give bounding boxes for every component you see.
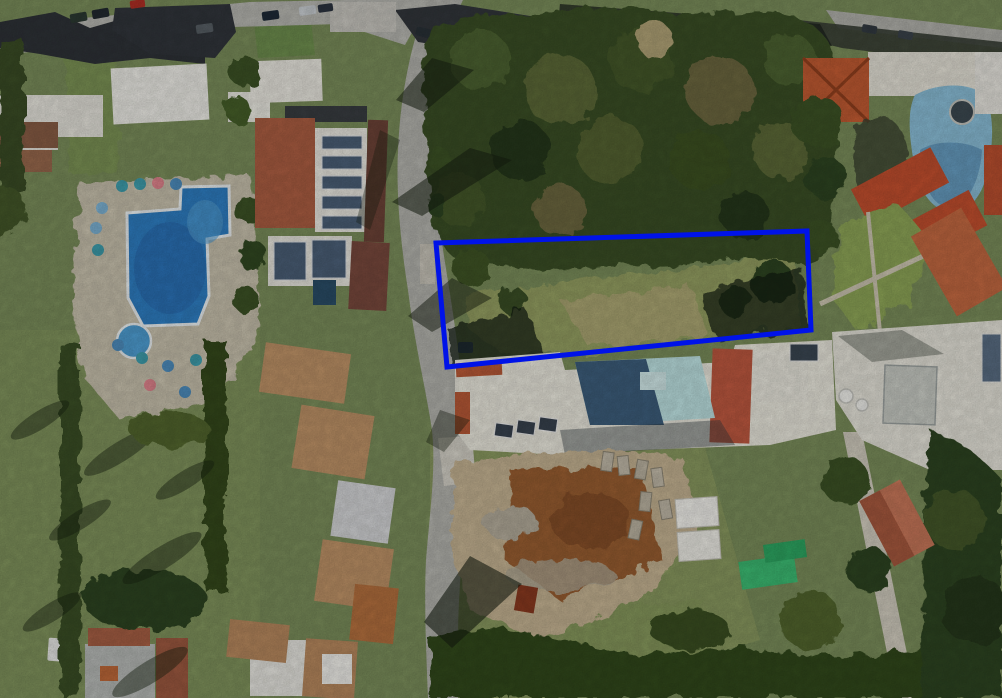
map-canvas[interactable] [0,0,1002,698]
photo-grain-overlay [0,0,1002,698]
satellite-image [0,0,1002,698]
